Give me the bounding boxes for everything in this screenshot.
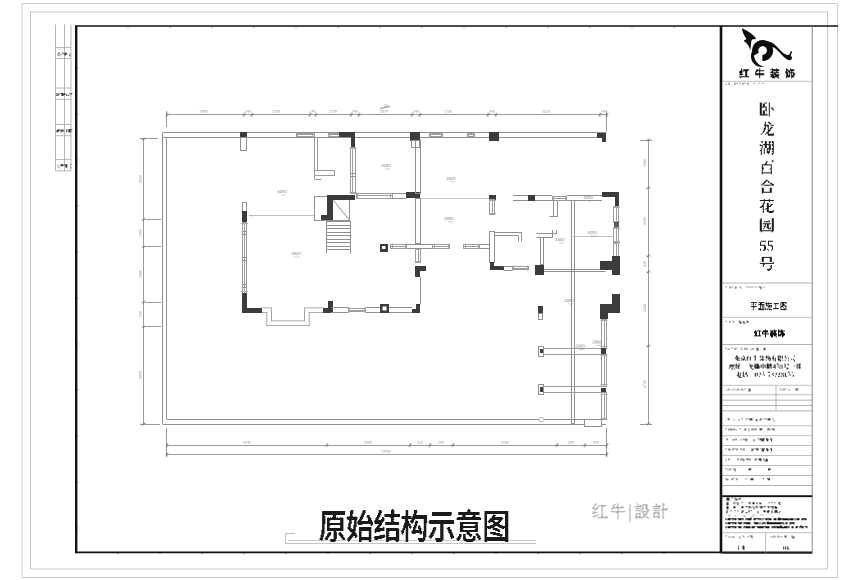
svg-text:240: 240 <box>352 110 358 114</box>
svg-text:2/8: 2/8 <box>384 104 389 108</box>
svg-text:240: 240 <box>643 261 647 267</box>
svg-text:1580: 1580 <box>643 159 647 167</box>
svg-text:3905: 3905 <box>200 110 208 114</box>
svg-text:240: 240 <box>568 440 574 444</box>
svg-text:240: 240 <box>438 440 444 444</box>
svg-text:3050: 3050 <box>139 371 143 379</box>
svg-text:1880: 1880 <box>139 270 143 278</box>
svg-text:13560: 13560 <box>381 450 391 454</box>
svg-text:2920: 2920 <box>291 251 301 256</box>
svg-text:2310: 2310 <box>542 110 550 114</box>
svg-text:3250: 3250 <box>381 163 391 168</box>
svg-text:(40: (40 <box>601 110 606 114</box>
svg-text:2580: 2580 <box>364 440 372 444</box>
svg-text:(240: (240 <box>139 229 143 236</box>
svg-text:2450: 2450 <box>643 304 647 312</box>
svg-text:240: 240 <box>489 110 495 114</box>
svg-text:200: 200 <box>593 440 599 444</box>
svg-text:2925: 2925 <box>446 176 456 181</box>
svg-text:5250: 5250 <box>277 189 287 194</box>
svg-text:1730: 1730 <box>329 110 337 114</box>
svg-text:240: 240 <box>413 110 419 114</box>
svg-text:4000: 4000 <box>587 230 597 235</box>
svg-text:3570: 3570 <box>380 110 388 114</box>
svg-text:2600: 2600 <box>575 343 585 348</box>
svg-text:2750: 2750 <box>643 380 647 388</box>
svg-text:240: 240 <box>245 110 251 114</box>
svg-text:120: 120 <box>417 440 423 444</box>
svg-text:7: 7 <box>251 215 253 219</box>
svg-text:1730: 1730 <box>444 110 452 114</box>
svg-text:(40: (40 <box>310 110 315 114</box>
svg-text:1600: 1600 <box>555 237 565 242</box>
svg-text:2250: 2250 <box>643 217 647 225</box>
svg-text:3190: 3190 <box>501 440 509 444</box>
svg-text:3130: 3130 <box>139 175 143 183</box>
svg-text:2330: 2330 <box>272 110 280 114</box>
svg-text:2908: 2908 <box>592 339 602 344</box>
svg-text:3350: 3350 <box>564 298 574 303</box>
svg-text:4140: 4140 <box>243 440 251 444</box>
svg-text:240: 240 <box>139 311 143 317</box>
svg-text:2000: 2000 <box>583 195 593 200</box>
svg-text:3080: 3080 <box>444 216 454 221</box>
